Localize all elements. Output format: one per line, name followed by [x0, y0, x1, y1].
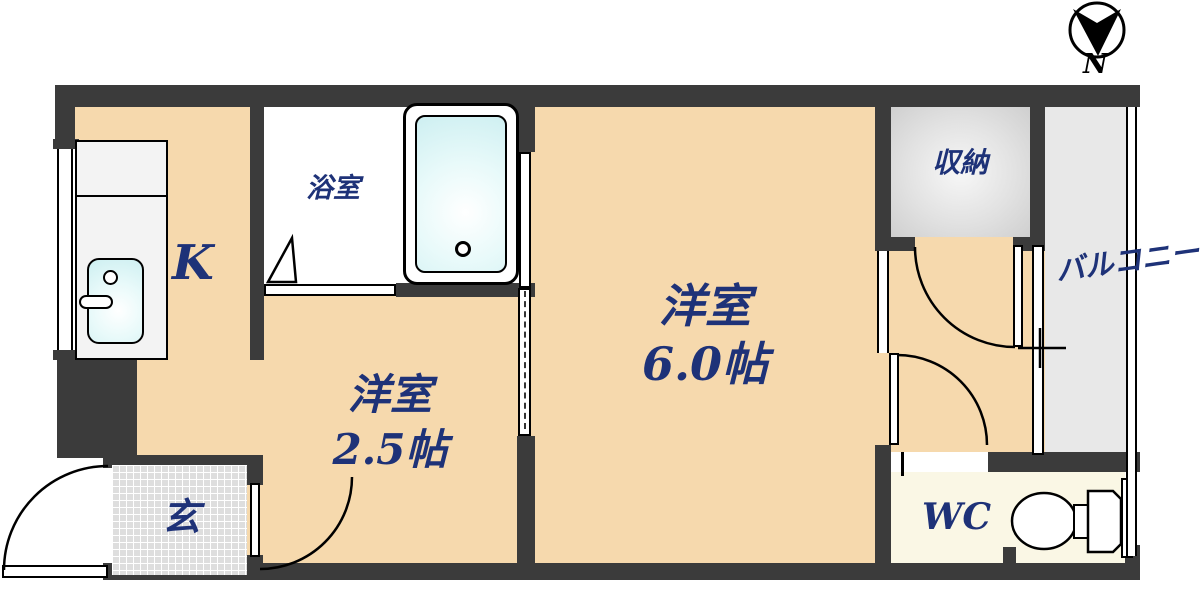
sliding-door	[518, 288, 531, 436]
entrance-room-door-leaf	[250, 483, 260, 557]
wall-closet-bottom-left	[875, 237, 915, 251]
closet-door-leaf	[1013, 245, 1023, 347]
wall-bathroom-left	[250, 107, 264, 360]
western-room-small-label: 洋室 2.5帖	[295, 372, 485, 473]
entrance-label: 玄	[162, 496, 200, 537]
bathroom-door-track	[264, 284, 396, 296]
kitchen-window	[57, 147, 73, 358]
wall-partition-bottom	[517, 436, 535, 563]
wall-bathroom-bottom	[396, 283, 535, 297]
wall-entrance-right-bottom	[247, 555, 263, 580]
closet-label: 収納	[908, 148, 1012, 178]
western-room-large-size: 6.0帖	[605, 340, 805, 390]
room-hall-door-leaf	[889, 353, 899, 445]
western-room-small-name: 洋室	[295, 372, 485, 417]
hall-door-strip	[877, 251, 889, 353]
wc-door-jamb	[901, 452, 904, 476]
kitchen-label: K	[172, 238, 214, 290]
wc-door-opening	[891, 452, 988, 472]
bathroom-side-window	[519, 152, 531, 288]
sink-faucet	[103, 270, 118, 285]
wall-entrance-right-top	[247, 455, 263, 485]
sink-handle	[79, 295, 113, 309]
entrance-outside-area	[55, 458, 112, 580]
floor-plan: N K 浴室 洋室 2.5帖 洋室 6.0帖 収納 バルコニー WC 玄	[0, 0, 1200, 591]
bathtub-drain	[455, 241, 471, 257]
balcony-railing	[1126, 107, 1137, 556]
balcony-window	[1032, 245, 1044, 455]
wall-left-mid	[57, 358, 137, 458]
wall-wc-top	[988, 452, 1140, 472]
entry-door-leaf	[2, 565, 108, 578]
western-room-large-label: 洋室 6.0帖	[605, 282, 805, 389]
wc-label: WC	[922, 498, 991, 537]
wall-closet-left	[875, 107, 891, 251]
western-room-large-name: 洋室	[605, 282, 805, 332]
wall-wc-bottom-stub	[1003, 547, 1016, 563]
bathroom-label: 浴室	[306, 174, 360, 203]
wall-closet-right	[1030, 107, 1045, 251]
wall-left-top	[55, 85, 75, 147]
wall-top	[55, 85, 1140, 107]
compass-label: N	[1083, 50, 1108, 79]
wall-wc-left	[875, 445, 891, 563]
western-room-small-size: 2.5帖	[295, 427, 485, 472]
kitchen-counter-divider	[77, 195, 166, 197]
